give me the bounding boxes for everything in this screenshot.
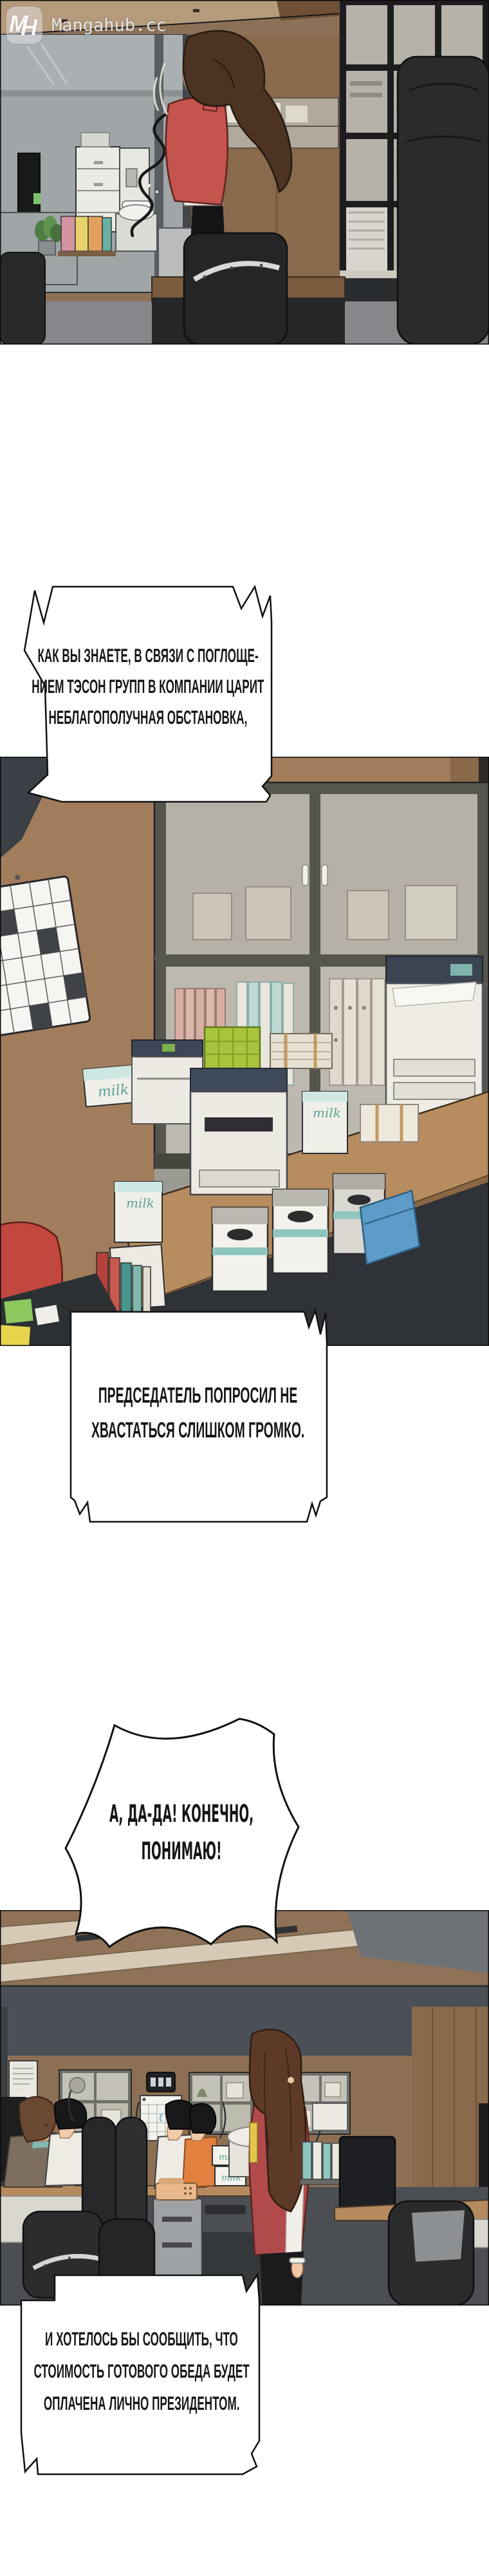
mh-logo-icon: M H bbox=[6, 6, 42, 44]
speech-bubble-2-text: ПРЕДСЕДАТЕЛЬ ПОПРОСИЛ НЕ ХВАСТАТЬСЯ СЛИШ… bbox=[61, 1378, 335, 1448]
panel-1-office-phone-scene bbox=[0, 0, 489, 345]
panel-2-copier-room-scene: milk bbox=[0, 757, 489, 1346]
green-crate bbox=[205, 1027, 260, 1068]
paper-bundles bbox=[270, 1034, 332, 1068]
webtoon-page: M H Mangahub.cc КАК ВЫ ЗНАЕТЕ, В СВЯЗИ С… bbox=[0, 0, 489, 2576]
books bbox=[61, 216, 111, 251]
svg-text:milk: milk bbox=[313, 1105, 341, 1121]
panel-3-office-wide-scene: milk milk bbox=[0, 1910, 489, 2306]
right-chair bbox=[389, 2201, 474, 2306]
speech-bubble-1-text: КАК ВЫ ЗНАЕТЕ, В СВЯЗИ С ПОГЛОЩЕ- НИЕМ Т… bbox=[13, 641, 283, 734]
office-chair bbox=[184, 233, 287, 345]
svg-text:milk: milk bbox=[97, 1082, 129, 1101]
digital-wall-clock bbox=[147, 2072, 175, 2092]
watermark-site-name: Mangahub.cc bbox=[51, 15, 167, 35]
speech-bubble-3-text: А, ДА-ДА! КОНЕЧНО, ПОНИМАЮ! bbox=[58, 1795, 306, 1870]
svg-text:milk: milk bbox=[126, 1195, 154, 1211]
milk-box-on-desk: milk bbox=[302, 1092, 347, 1153]
site-watermark: M H Mangahub.cc bbox=[6, 6, 167, 44]
desk-printer bbox=[190, 1068, 287, 1195]
speech-bubble-4-text: И ХОТЕЛОСЬ БЫ СООБЩИТЬ, ЧТО СТОИМОСТЬ ГО… bbox=[16, 2324, 267, 2420]
tall-office-chair bbox=[398, 57, 489, 345]
